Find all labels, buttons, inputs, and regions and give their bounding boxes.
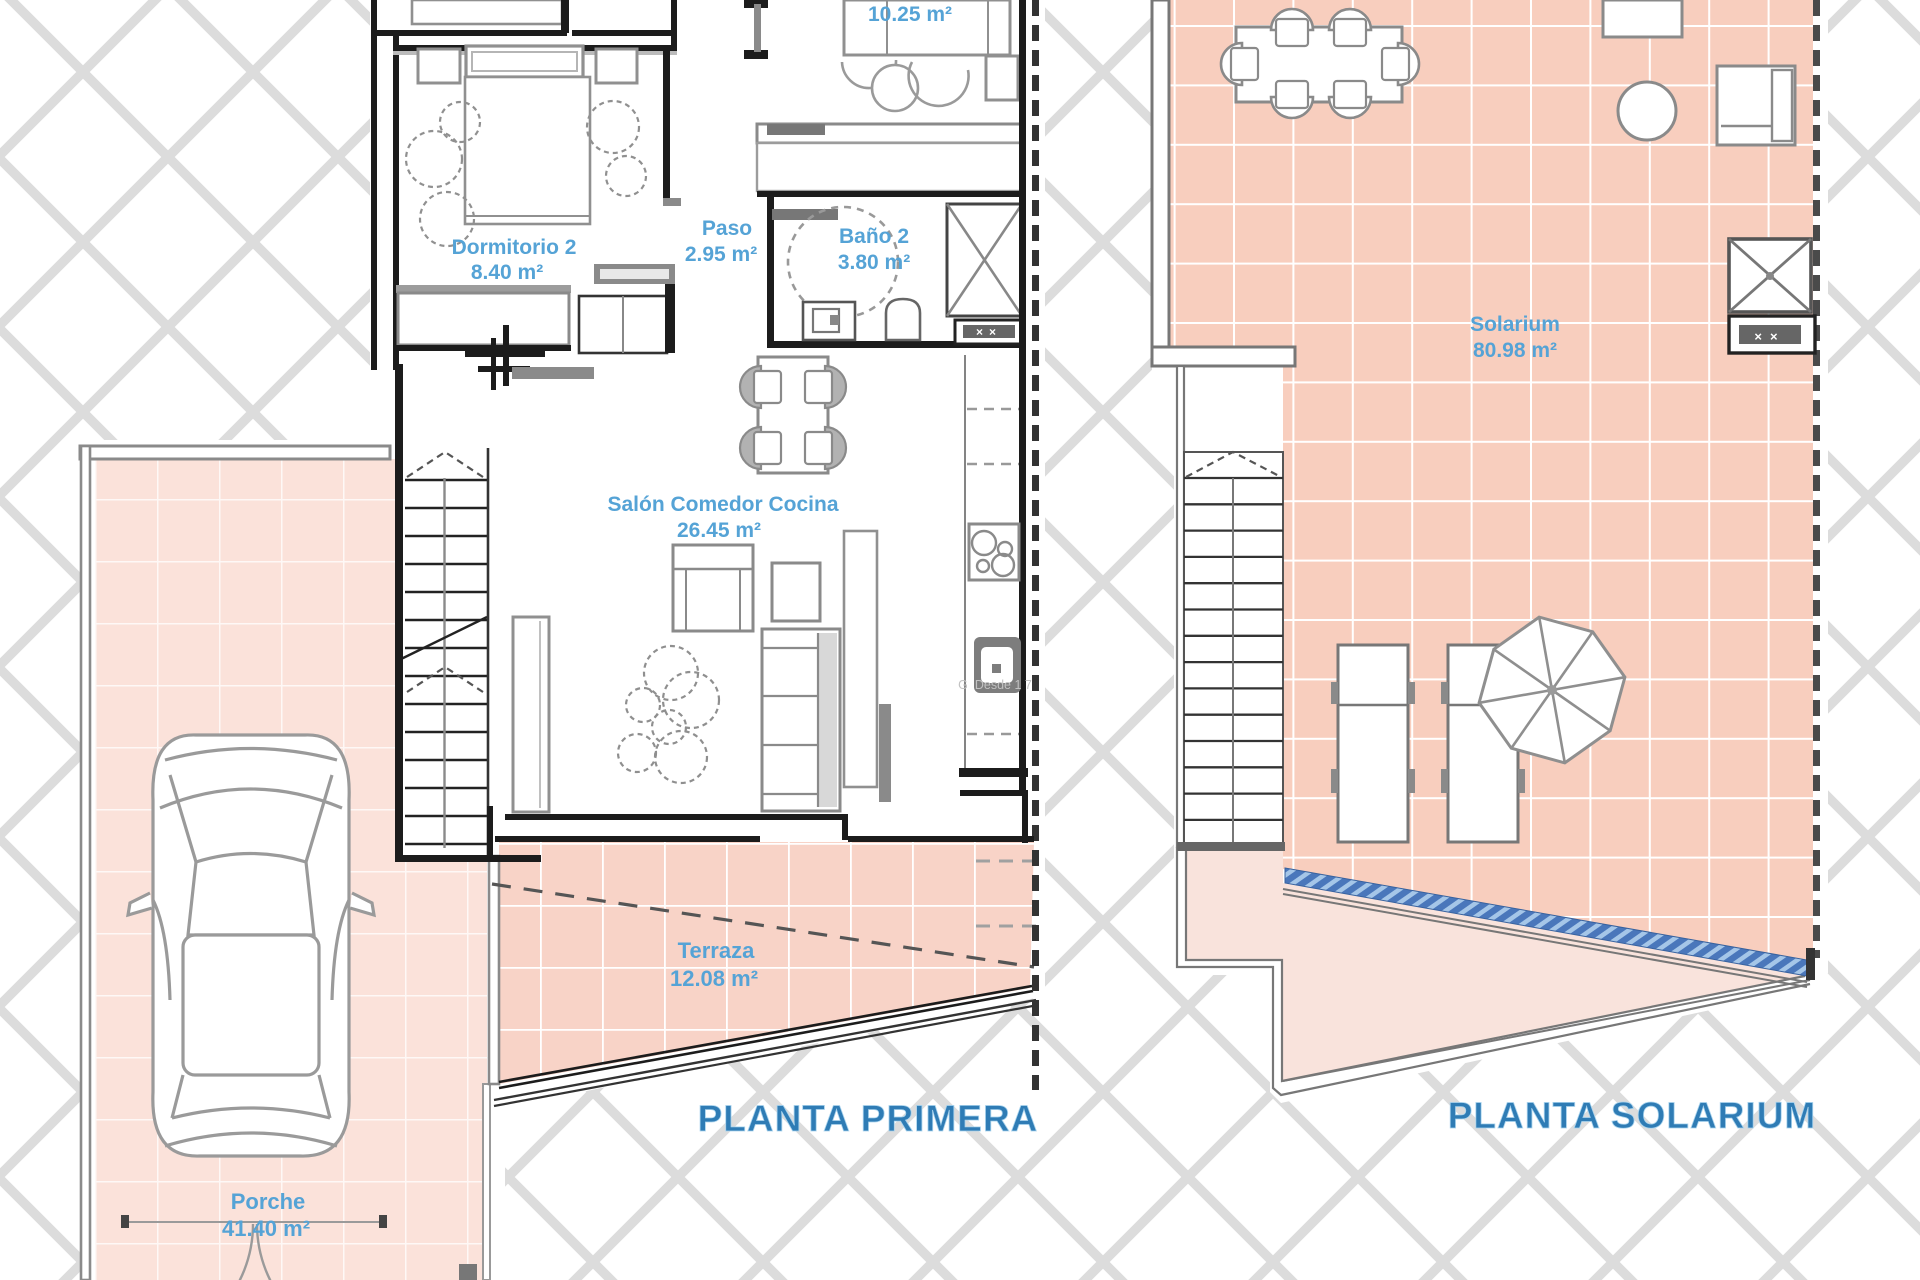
svg-text:Paso: Paso	[702, 217, 752, 240]
svg-text:8.40 m²: 8.40 m²	[471, 261, 543, 284]
svg-text:3.80 m²: 3.80 m²	[838, 251, 910, 274]
svg-text:Solarium: Solarium	[1470, 313, 1560, 336]
svg-text:12.08 m²: 12.08 m²	[670, 966, 758, 991]
svg-text:××: ××	[1754, 329, 1785, 344]
svg-text:80.98 m²: 80.98 m²	[1473, 339, 1557, 362]
svg-text:41.40 m²: 41.40 m²	[222, 1216, 310, 1241]
svg-text:PLANTA PRIMERA: PLANTA PRIMERA	[698, 1098, 1039, 1139]
svg-text:PLANTA SOLARIUM: PLANTA SOLARIUM	[1448, 1095, 1817, 1136]
svg-text:Baño 2: Baño 2	[839, 225, 909, 248]
svg-text:Salón Comedor Cocina: Salón Comedor Cocina	[607, 493, 838, 516]
svg-text:Porche: Porche	[231, 1189, 306, 1214]
svg-text:G Desde 1 7: G Desde 1 7	[958, 678, 1032, 692]
svg-text:××: ××	[976, 325, 1002, 339]
svg-text:Dormitorio 2: Dormitorio 2	[452, 236, 577, 259]
svg-text:26.45 m²: 26.45 m²	[677, 519, 761, 542]
svg-text:10.25 m²: 10.25 m²	[868, 3, 952, 26]
svg-text:2.95 m²: 2.95 m²	[685, 243, 757, 266]
svg-text:Terraza: Terraza	[678, 938, 755, 963]
